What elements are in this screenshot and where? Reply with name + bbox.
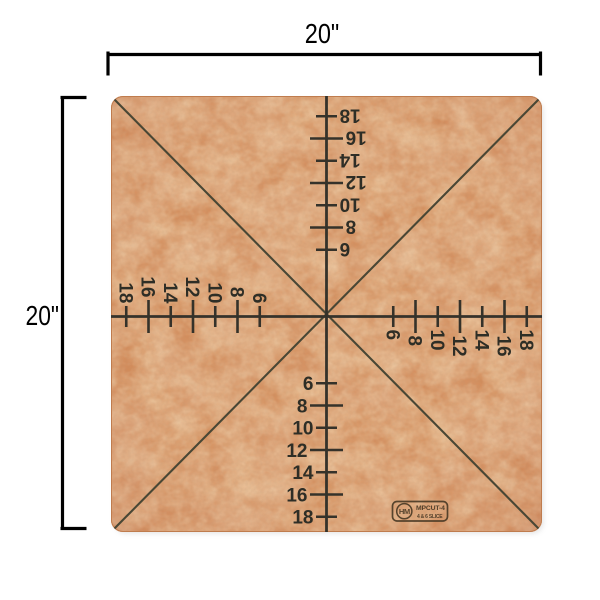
svg-text:6: 6 [340, 238, 351, 259]
svg-text:8: 8 [297, 396, 308, 417]
svg-text:6: 6 [303, 374, 314, 395]
svg-text:18: 18 [292, 508, 313, 529]
svg-text:8: 8 [404, 336, 425, 347]
svg-text:16: 16 [286, 485, 307, 506]
svg-text:14: 14 [292, 463, 314, 484]
svg-text:12: 12 [286, 441, 307, 462]
svg-text:16: 16 [137, 276, 158, 297]
svg-text:HM: HM [399, 507, 410, 516]
svg-text:12: 12 [346, 171, 367, 192]
svg-text:4 & 6 SLICE: 4 & 6 SLICE [417, 514, 443, 520]
svg-text:8: 8 [346, 216, 357, 237]
svg-text:MPCUT-4: MPCUT-4 [416, 505, 445, 512]
svg-text:6: 6 [381, 330, 402, 341]
svg-text:20": 20" [305, 18, 340, 49]
svg-text:12: 12 [448, 336, 469, 357]
svg-text:6: 6 [248, 293, 269, 304]
svg-text:16: 16 [493, 336, 514, 357]
svg-text:18: 18 [114, 282, 135, 303]
svg-text:14: 14 [339, 149, 361, 170]
svg-text:10: 10 [340, 193, 361, 214]
svg-text:14: 14 [159, 282, 180, 304]
svg-text:10: 10 [203, 282, 224, 303]
svg-text:12: 12 [181, 276, 202, 297]
svg-text:10: 10 [426, 330, 447, 351]
svg-text:18: 18 [515, 330, 536, 351]
svg-text:14: 14 [470, 330, 491, 352]
svg-text:10: 10 [292, 419, 313, 440]
svg-text:20": 20" [26, 300, 60, 331]
svg-text:8: 8 [226, 287, 247, 298]
svg-text:18: 18 [340, 104, 361, 125]
svg-text:16: 16 [346, 127, 367, 148]
